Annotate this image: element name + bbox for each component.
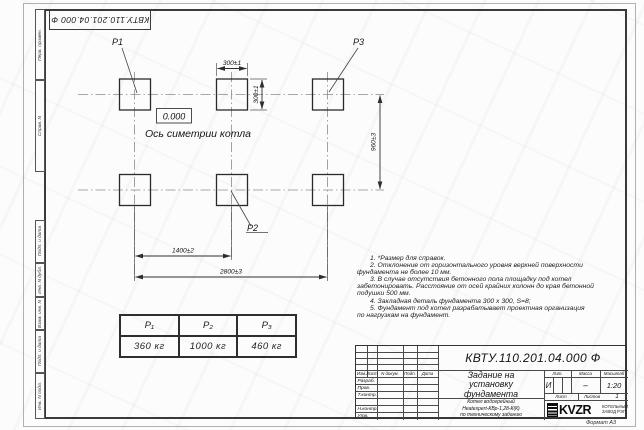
rev-header-data: Дата <box>417 370 438 377</box>
note-line: подушки 500 мм. <box>357 290 633 297</box>
row-label-razrab: Разраб. <box>358 379 375 384</box>
margin-label: Справ. N <box>38 116 43 136</box>
sheet-label: Лист <box>544 393 578 400</box>
boiler-symmetry-axis-label: Ось симетрии котла <box>145 128 251 140</box>
sheets-label: Листов <box>578 393 606 400</box>
load-table-value-p1: 360 кг <box>120 336 179 357</box>
scale-label: Масштаб <box>600 370 628 377</box>
row-label-utv: Утв. <box>358 414 369 419</box>
load-table-header-p1: P₁ <box>120 315 179 336</box>
title-block-doc-number: КВТУ.110.201.04.000 Ф <box>440 346 626 370</box>
margin-label: Подп. и дата <box>38 336 43 366</box>
leader-p1 <box>122 48 137 93</box>
rev-header-list: Лист <box>367 370 377 377</box>
mass-label: Масса <box>571 370 600 377</box>
manufacturer-logo: KVZR <box>547 402 591 418</box>
margin-label: Инв. N дубл. <box>38 266 43 294</box>
scale-value: 1:20 <box>600 377 628 393</box>
dim-pad-height: 300±1 <box>253 85 260 104</box>
margin-label: Подп. и дата <box>38 226 43 256</box>
doc-subtitle-line-3: по техническому заданию <box>440 412 542 418</box>
zero-level-value: 0.000 <box>163 112 186 122</box>
grid-line <box>544 400 628 401</box>
dim-pad-width: 300±1 <box>223 60 242 67</box>
margin-label: Инв. N подл. <box>38 382 43 410</box>
kvzr-emblem-icon <box>547 403 558 417</box>
pad-load-label-p1: P1 <box>112 37 123 47</box>
doc-title-line-2: установку <box>440 380 542 390</box>
dim-row-spacing: 960±3 <box>371 133 378 152</box>
pad-load-label-p3: P3 <box>353 37 364 47</box>
rev-header-podp: Подп. <box>403 370 417 377</box>
margin-label: Взам. инв. N <box>38 300 43 328</box>
doc-subtitle-line-1: Котел водогрейный <box>440 399 542 405</box>
load-table-value-p3: 460 кг <box>237 336 296 357</box>
margin-label: Перв. примен. <box>38 29 43 61</box>
grid-line <box>438 346 439 420</box>
doc-title-line-3: фундамента <box>440 389 542 399</box>
note-line: 4. Закладная деталь фундамента 300 х 300… <box>357 298 633 305</box>
load-table: P₁ P₂ P₃ 360 кг 1000 кг 460 кг <box>119 314 297 358</box>
note-line: по нагрузкам на фундамент. <box>357 312 633 319</box>
row-label-prov: Пров. <box>358 386 371 391</box>
pad-load-label-p2: P2 <box>247 223 258 233</box>
load-table-header-p3: P₃ <box>237 315 296 336</box>
grid-line <box>356 358 438 359</box>
dim-col-spacing: 1400±2 <box>172 248 194 255</box>
row-label-tkontr: Т.контр. <box>358 393 377 398</box>
rev-header-ndokum: N докум. <box>377 370 403 377</box>
grid-line <box>356 364 438 365</box>
grid-line <box>562 377 563 393</box>
load-table-value-p2: 1000 кг <box>179 336 238 357</box>
note-line: 5. Фундамент под котел разрабатывает про… <box>357 305 633 312</box>
dim-total-length: 2800±3 <box>219 269 242 276</box>
company-line: ЗАВОД РЭП <box>602 409 628 414</box>
grid-line <box>356 352 438 353</box>
load-table-header-p2: P₂ <box>179 315 238 336</box>
grid-line <box>356 398 438 399</box>
sheet-format-label: Формат А3 <box>556 420 644 426</box>
grid-line <box>553 377 554 393</box>
lit-label: Лит. <box>544 370 571 377</box>
doc-title-line-1: Задание на <box>440 370 542 380</box>
lit-value: И <box>544 377 553 393</box>
doc-subtitle-line-2: Heatexpert-КВр-1,28-К(К) <box>440 406 542 412</box>
drawing-sheet: Перв. примен. Справ. N Подп. и дата Инв.… <box>0 0 644 430</box>
mass-value: – <box>571 377 600 393</box>
company-name: КОТЕЛЬНЫЙ ЗАВОД РЭП <box>602 404 628 414</box>
kvzr-logo-text: KVZR <box>559 403 591 417</box>
sheets-value: 1 <box>606 393 628 400</box>
title-block: Изм. Лист N докум. Подп. Дата Разраб. Пр… <box>355 345 627 419</box>
technical-notes: 1. *Размер для справок. 2. Отклонение от… <box>357 255 633 319</box>
row-label-nkontr: Н.контр. <box>358 407 378 412</box>
